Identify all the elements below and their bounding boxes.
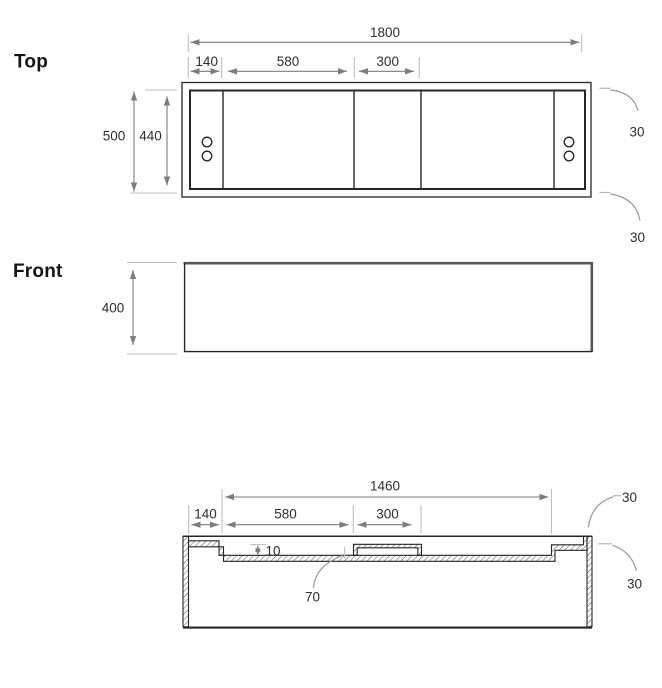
top-view: Top 1800 140 580 [14, 25, 645, 245]
front-view-title: Front [13, 261, 63, 282]
callout-section-top-corner: 30 [588, 490, 637, 527]
dim-plateau-label: 300 [376, 507, 399, 522]
section-plateau-profile [354, 544, 422, 555]
section-corner-top-label: 30 [622, 490, 637, 505]
dim-left-ledge-label: 140 [194, 507, 217, 522]
right-hole-bottom [564, 151, 574, 161]
front-top-right-edge [184, 263, 592, 352]
front-view: Front 400 [13, 261, 593, 354]
top-inner-outline [190, 91, 585, 190]
dim-top-segments: 140 580 300 [188, 54, 419, 78]
left-hole-top [202, 137, 212, 147]
dim-recess-width-label: 1460 [370, 479, 400, 494]
section-ledge-floor-profile [189, 536, 588, 561]
dim-step-depth-label: 10 [266, 544, 281, 559]
dim-overall-width: 1800 [188, 25, 581, 52]
dim-outer-depth-label: 500 [103, 129, 126, 144]
callout-bottom-corner: 30 [600, 193, 646, 246]
top-outer-outline [182, 83, 591, 198]
dim-front-height: 400 [102, 263, 177, 355]
dim-top-depths: 500 440 [103, 90, 177, 193]
section-view: 1460 140 580 300 10 70 [183, 479, 642, 628]
dim-overall-width-label: 1800 [370, 25, 400, 40]
callout-top-corner: 30 [600, 88, 645, 139]
dim-mid-panel-label: 580 [277, 54, 300, 69]
section-corner-bottom-label: 30 [627, 577, 642, 592]
dim-front-height-label: 400 [102, 301, 125, 316]
left-hole-bottom [202, 151, 212, 161]
front-left-bottom-edge [185, 263, 593, 352]
corner-bottom-label: 30 [630, 230, 645, 245]
dim-floor-left-label: 580 [274, 507, 297, 522]
dim-left-panel-label: 140 [195, 54, 218, 69]
dim-section-segments: 140 580 300 [189, 505, 421, 534]
callout-section-bottom-corner: 30 [598, 544, 642, 592]
right-hole-top [564, 137, 574, 147]
technical-drawing-page: Top 1800 140 580 [0, 0, 662, 688]
section-right-wall [587, 536, 592, 627]
section-left-wall [183, 536, 189, 627]
dim-right-panel-label: 300 [376, 54, 399, 69]
dim-inner-depth-label: 440 [139, 129, 162, 144]
corner-top-label: 30 [629, 124, 644, 139]
drawing-canvas: Top 1800 140 580 [0, 0, 662, 688]
dim-drain-offset-label: 70 [305, 589, 320, 604]
top-view-title: Top [14, 52, 48, 73]
